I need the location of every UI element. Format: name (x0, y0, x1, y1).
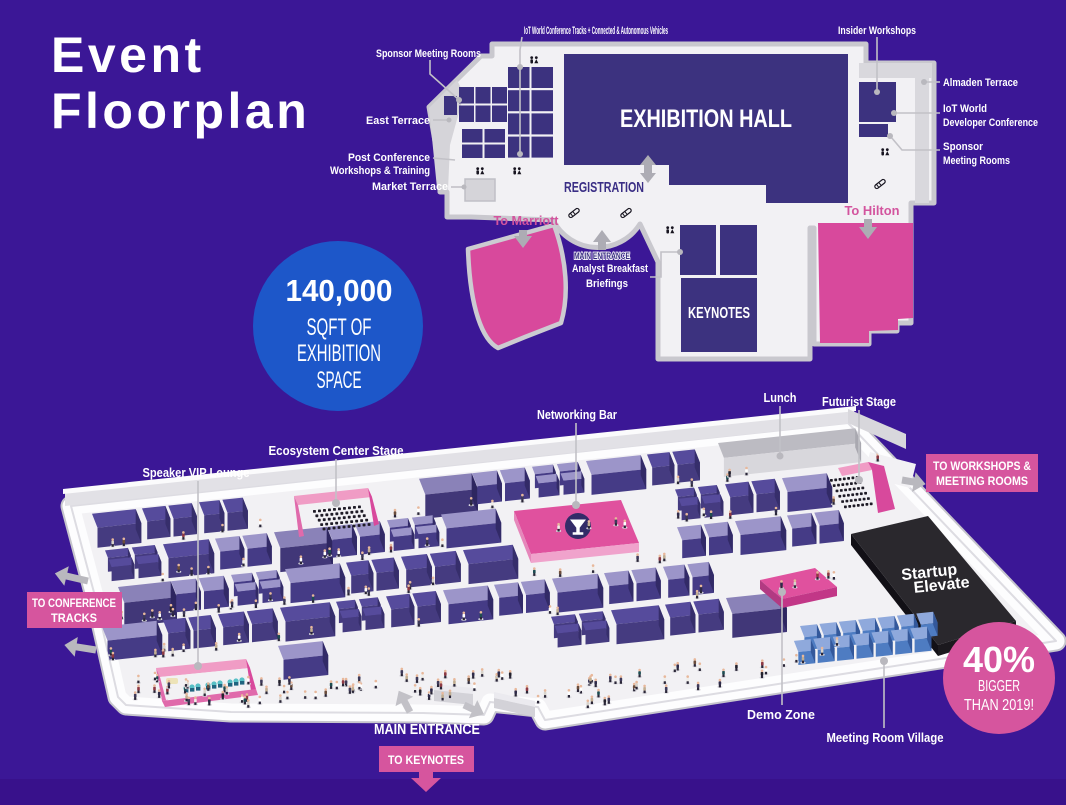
svg-text:Demo Zone: Demo Zone (747, 707, 815, 722)
svg-text:Meeting Room Village: Meeting Room Village (827, 730, 944, 745)
svg-text:BIGGER: BIGGER (978, 678, 1020, 695)
svg-text:TO WORKSHOPS &: TO WORKSHOPS & (933, 459, 1031, 473)
svg-text:EXHIBITION: EXHIBITION (297, 340, 381, 367)
svg-text:Meeting Rooms: Meeting Rooms (943, 155, 1010, 167)
svg-text:Almaden Terrace: Almaden Terrace (943, 77, 1018, 89)
svg-text:IoT World Conference Tracks +: IoT World Conference Tracks + Connected … (524, 25, 668, 37)
svg-text:To Marriott: To Marriott (494, 213, 560, 228)
svg-text:MEETING ROOMS: MEETING ROOMS (936, 474, 1028, 488)
svg-text:Futurist Stage: Futurist Stage (822, 394, 896, 409)
svg-text:Market Terrace: Market Terrace (372, 181, 448, 193)
svg-text:Ecosystem Center Stage: Ecosystem Center Stage (269, 443, 404, 458)
svg-text:Lunch: Lunch (764, 390, 797, 405)
svg-text:EXHIBITION HALL: EXHIBITION HALL (620, 105, 792, 133)
svg-text:SPACE: SPACE (317, 367, 362, 394)
svg-text:Networking Bar: Networking Bar (537, 407, 617, 422)
svg-text:Sponsor Meeting Rooms: Sponsor Meeting Rooms (376, 48, 481, 60)
svg-text:Sponsor: Sponsor (943, 141, 984, 153)
svg-text:THAN 2019!: THAN 2019! (964, 697, 1034, 714)
svg-text:Speaker VIP Lounge: Speaker VIP Lounge (143, 465, 250, 480)
svg-text:140,000: 140,000 (286, 273, 393, 308)
svg-text:IoT World: IoT World (943, 103, 987, 115)
svg-text:Analyst Breakfast: Analyst Breakfast (572, 263, 648, 275)
svg-text:To Hilton: To Hilton (845, 203, 900, 218)
svg-text:MAIN ENTRANCE: MAIN ENTRANCE (374, 721, 480, 738)
svg-text:Insider Workshops: Insider Workshops (838, 25, 916, 37)
svg-text:TO KEYNOTES: TO KEYNOTES (388, 753, 464, 767)
svg-text:Post Conference: Post Conference (348, 152, 430, 164)
svg-text:Developer Conference: Developer Conference (943, 117, 1038, 129)
svg-text:SQFT OF: SQFT OF (307, 314, 372, 341)
svg-text:REGISTRATION: REGISTRATION (564, 179, 644, 196)
svg-text:MAIN ENTRANCE: MAIN ENTRANCE (574, 251, 630, 261)
svg-text:Workshops & Training: Workshops & Training (330, 165, 430, 177)
svg-text:East Terrace: East Terrace (366, 115, 430, 127)
svg-text:KEYNOTES: KEYNOTES (688, 305, 750, 322)
svg-text:TO CONFERENCE: TO CONFERENCE (32, 596, 116, 610)
svg-text:40%: 40% (963, 639, 1035, 680)
svg-text:TRACKS: TRACKS (51, 611, 97, 625)
svg-text:Briefings: Briefings (586, 278, 628, 290)
